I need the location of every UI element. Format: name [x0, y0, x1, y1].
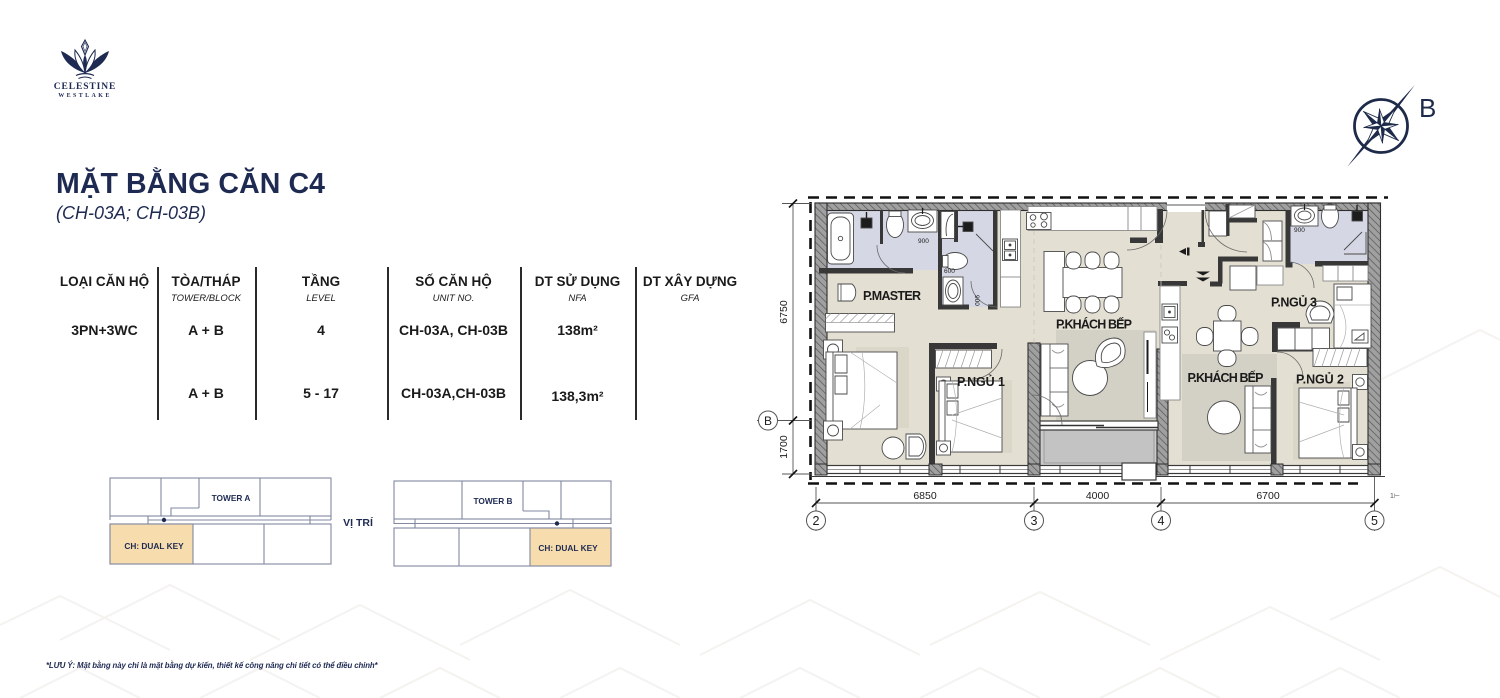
svg-text:B: B: [764, 414, 772, 428]
svg-text:1700: 1700: [778, 435, 790, 459]
svg-text:P.NGỦ 2: P.NGỦ 2: [1296, 372, 1344, 387]
svg-text:4000: 4000: [1086, 490, 1110, 502]
svg-text:VỊ TRÍ: VỊ TRÍ: [343, 516, 374, 529]
svg-text:B: B: [1419, 93, 1436, 123]
svg-text:900: 900: [918, 238, 929, 245]
svg-text:TOWER B: TOWER B: [473, 496, 512, 506]
svg-text:P.NGỦ 3: P.NGỦ 3: [1271, 295, 1317, 310]
svg-text:3: 3: [1031, 514, 1038, 528]
svg-text:TOWER A: TOWER A: [212, 493, 251, 503]
svg-text:P.KHÁCH BẾP: P.KHÁCH BẾP: [1188, 370, 1264, 385]
svg-text:CH: DUAL KEY: CH: DUAL KEY: [124, 541, 184, 551]
svg-text:6850: 6850: [913, 490, 937, 502]
svg-text:5: 5: [1371, 514, 1378, 528]
svg-text:2: 2: [813, 514, 820, 528]
svg-text:600: 600: [944, 268, 955, 275]
svg-text:6750: 6750: [778, 300, 790, 324]
svg-text:P.MASTER: P.MASTER: [863, 289, 921, 303]
svg-text:P.NGỦ 1: P.NGỦ 1: [957, 374, 1005, 389]
svg-text:CH: DUAL KEY: CH: DUAL KEY: [538, 543, 598, 553]
svg-text:P.KHÁCH BẾP: P.KHÁCH BẾP: [1056, 317, 1132, 332]
svg-text:900: 900: [973, 295, 980, 306]
svg-text:900: 900: [1294, 227, 1305, 234]
svg-text:1⊢: 1⊢: [1390, 493, 1400, 500]
svg-text:6700: 6700: [1256, 490, 1280, 502]
svg-text:4: 4: [1158, 514, 1165, 528]
